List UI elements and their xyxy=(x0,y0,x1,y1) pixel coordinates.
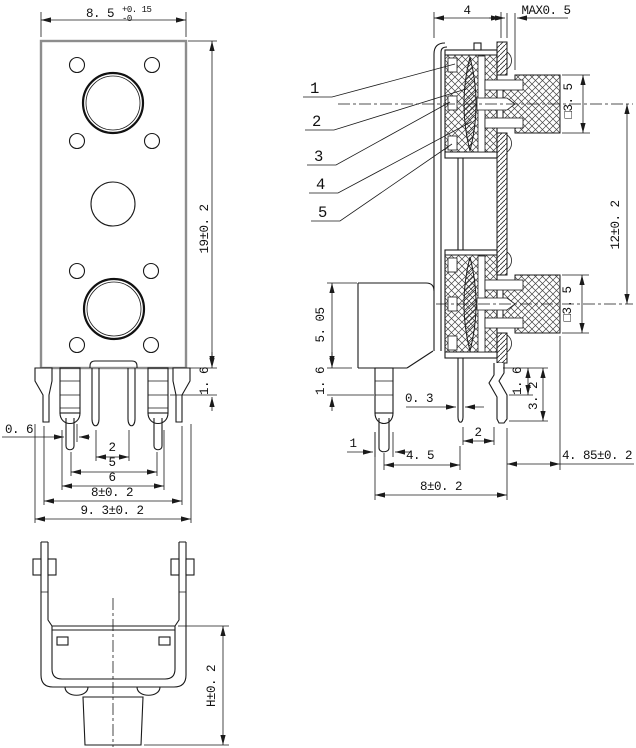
dim-front-pitch2: 2 xyxy=(108,441,115,455)
dim-side-gap: MAX0. 5 xyxy=(521,4,570,18)
side-bent-leg xyxy=(489,363,507,423)
front-hole xyxy=(70,58,85,73)
dim-side-leg-length: 3. 2 xyxy=(527,382,541,410)
callout-2: 2 xyxy=(312,113,321,131)
dim-side-pitch45: 4. 5 xyxy=(406,449,434,463)
bottom-pin-domes xyxy=(65,687,160,695)
engineering-drawing-sheet: 8. 5 +0. 15 -0 19±0. 2 1. 6 0. 6 2 5 6 8… xyxy=(0,0,636,748)
callout-3: 3 xyxy=(314,148,323,166)
dim-front-height: 19±0. 2 xyxy=(198,204,212,253)
front-housing-outline xyxy=(41,41,186,368)
callout-5: 5 xyxy=(318,204,327,222)
dim-front-pitch5: 5 xyxy=(108,456,115,470)
front-center-hole xyxy=(91,182,135,226)
dim-front-pitch8: 8±0. 2 xyxy=(91,486,133,500)
dim-side-leg-span: 8±0. 2 xyxy=(420,480,462,494)
drawing-canvas: 8. 5 +0. 15 -0 19±0. 2 1. 6 0. 6 2 5 6 8… xyxy=(0,0,636,748)
dim-front-overall: 9. 3±0. 2 xyxy=(80,504,143,518)
front-left-bracket-leg xyxy=(35,368,52,422)
front-lower-jack xyxy=(70,264,159,353)
dim-bottom-height: H±0. 2 xyxy=(205,665,219,707)
dim-front-pin-width: 0. 6 xyxy=(5,423,33,437)
dim-front-width: 8. 5 xyxy=(86,7,114,21)
dim-side-square-lower: □3. 5 xyxy=(561,286,575,321)
dim-front-lip: 1. 6 xyxy=(198,367,212,395)
callout-4: 4 xyxy=(316,176,325,194)
dim-side-leg-width: 1 xyxy=(349,437,356,451)
dim-side-body-height: 5. 05 xyxy=(314,307,328,342)
front-upper-jack xyxy=(70,58,160,149)
dim-side-square-upper: □3. 5 xyxy=(562,83,576,118)
side-bracket-arm xyxy=(358,283,434,368)
callout-1: 1 xyxy=(310,80,319,98)
bottom-bracket xyxy=(33,542,194,745)
side-leg-block xyxy=(375,368,393,452)
front-center-pin-right xyxy=(128,368,135,426)
dim-side-depth: 4 xyxy=(463,4,470,18)
front-center-pin-left xyxy=(92,368,99,426)
dim-side-pin-pitch: 2 xyxy=(474,426,481,440)
dim-side-leg-segment: 1. 6 xyxy=(511,367,525,395)
front-right-pin-block xyxy=(148,368,168,450)
side-view xyxy=(303,12,634,500)
dim-side-shaft-offset: 4. 85±0. 2 xyxy=(562,449,632,463)
dim-side-lip-left: 1. 6 xyxy=(314,367,328,395)
dim-side-pin-width: 0. 3 xyxy=(405,392,433,406)
dim-side-jack-pitch: 12±0. 2 xyxy=(609,200,623,249)
dim-front-width-tol-dn: -0 xyxy=(122,14,132,24)
bottom-view xyxy=(33,542,229,747)
dim-front-pitch6: 6 xyxy=(108,471,115,485)
